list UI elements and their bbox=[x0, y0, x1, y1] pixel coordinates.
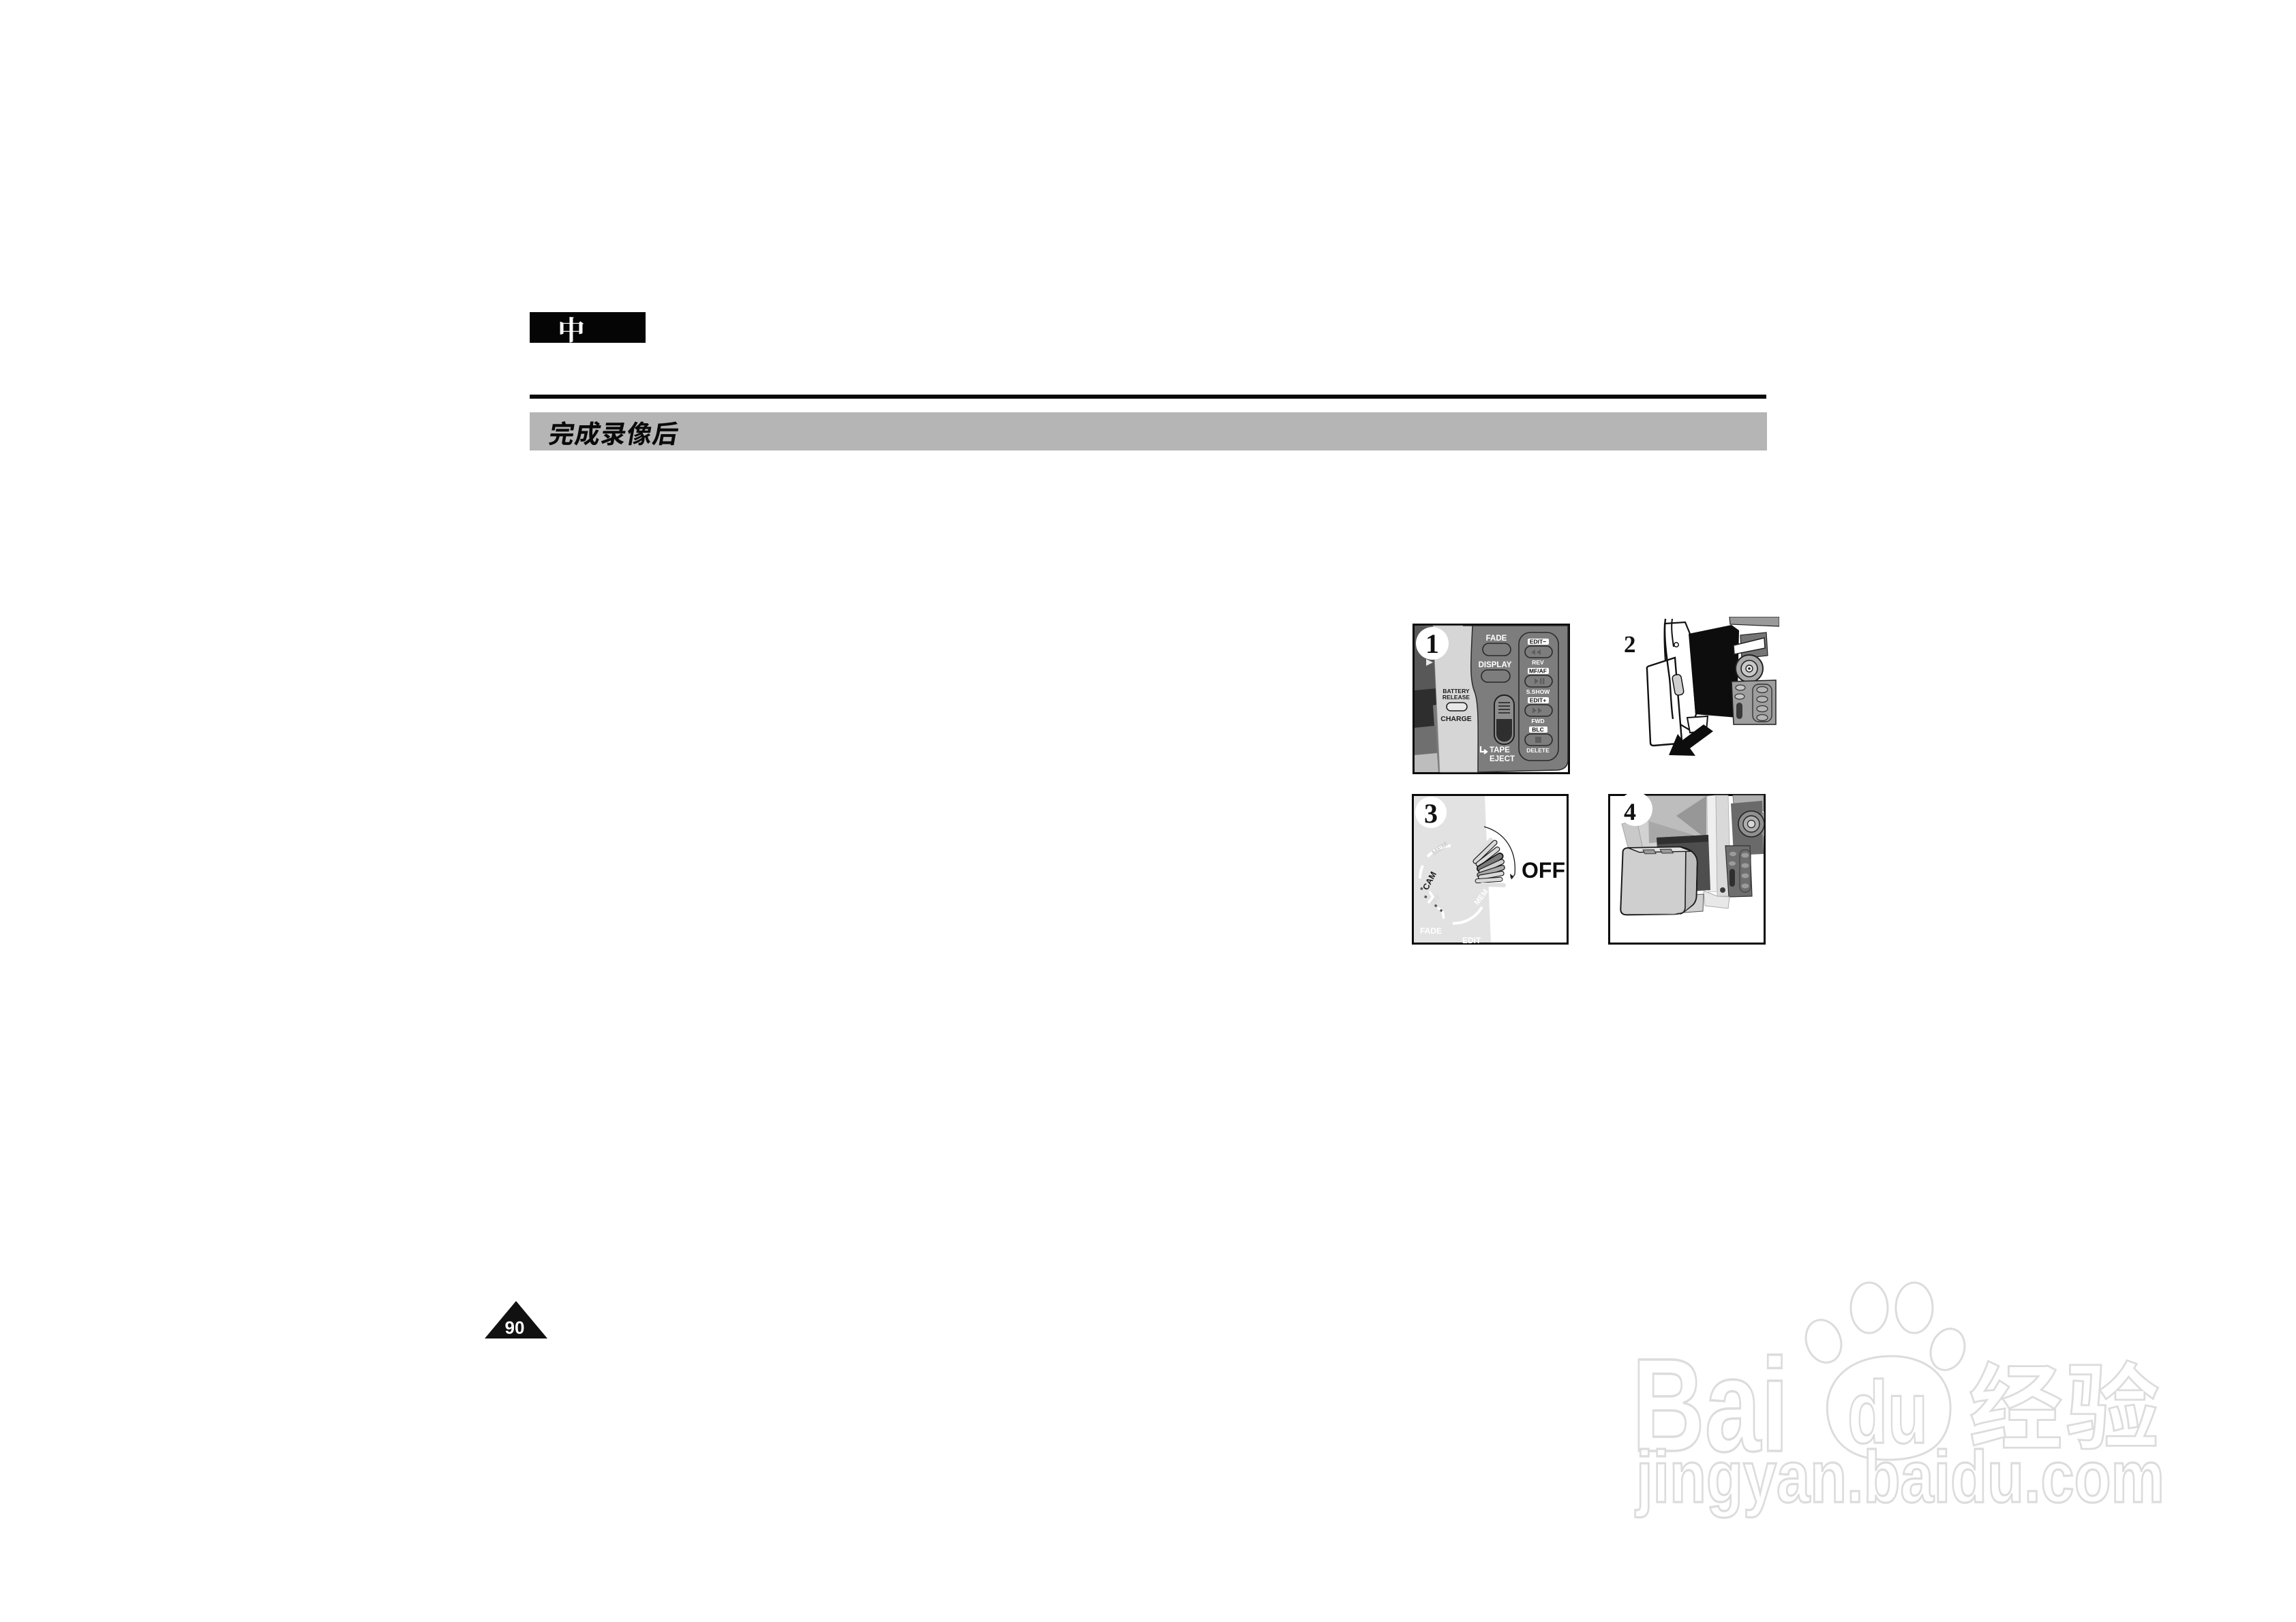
svg-text:FWD: FWD bbox=[1531, 718, 1544, 724]
svg-text:BLC: BLC bbox=[1532, 726, 1543, 733]
svg-text:90: 90 bbox=[505, 1317, 525, 1338]
svg-text:DELETE: DELETE bbox=[1526, 747, 1550, 754]
svg-text:jingyan.baidu.com: jingyan.baidu.com bbox=[1635, 1435, 2164, 1518]
svg-text:REV: REV bbox=[1532, 659, 1544, 666]
svg-text:EDIT: EDIT bbox=[1462, 936, 1481, 945]
svg-text:4: 4 bbox=[1624, 798, 1636, 825]
svg-text:DISPLAY: DISPLAY bbox=[1479, 661, 1512, 669]
svg-text:FADE: FADE bbox=[1420, 926, 1442, 936]
svg-text:FADE: FADE bbox=[1486, 634, 1507, 643]
svg-text:TAPE: TAPE bbox=[1490, 746, 1510, 754]
svg-text:EJECT: EJECT bbox=[1490, 755, 1515, 763]
svg-text:CHARGE: CHARGE bbox=[1440, 715, 1472, 723]
svg-text:S.SHOW: S.SHOW bbox=[1526, 688, 1550, 695]
svg-text:RELEASE: RELEASE bbox=[1442, 694, 1470, 701]
svg-text:MF/AF: MF/AF bbox=[1529, 668, 1547, 675]
svg-text:EDIT+: EDIT+ bbox=[1530, 697, 1546, 704]
svg-text:EDIT−: EDIT− bbox=[1530, 639, 1546, 645]
svg-text:3: 3 bbox=[1424, 798, 1438, 829]
svg-text:OFF: OFF bbox=[1522, 858, 1565, 883]
svg-text:1: 1 bbox=[1425, 628, 1439, 659]
svg-text:2: 2 bbox=[1624, 631, 1636, 658]
